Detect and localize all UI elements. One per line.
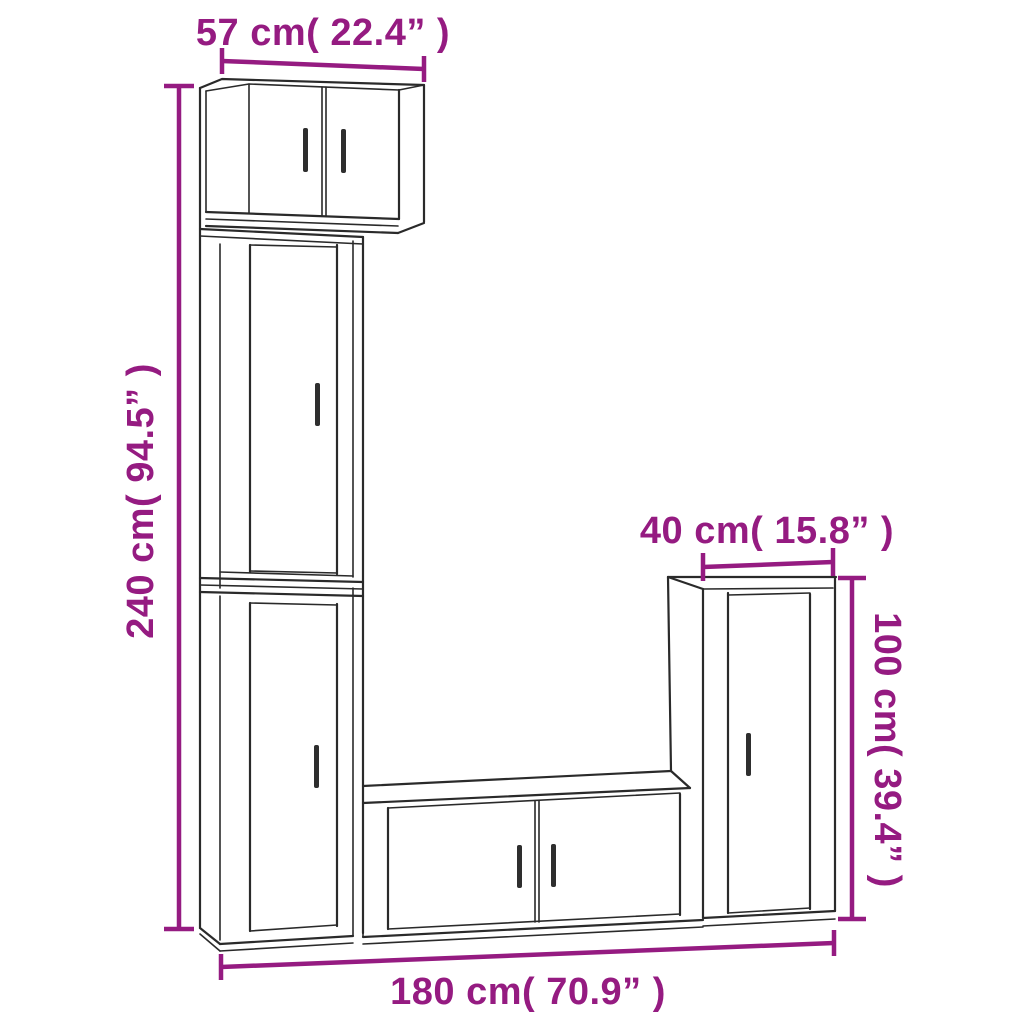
dimension-diagram: 57 cm( 22.4” ) 240 cm( 94.5” ) 40 cm( 15…: [0, 0, 1024, 1024]
side-cabinet-right-drawing: [668, 577, 836, 926]
door-handle: [517, 845, 522, 888]
stack-junction-lines: [200, 572, 363, 596]
door-handle: [315, 383, 320, 426]
label-right-cabinet-width: 40 cm( 15.8” ): [640, 510, 894, 552]
tv-bench-drawing: [363, 771, 703, 944]
door-handle: [551, 844, 556, 887]
dim-line-left-height: [164, 86, 194, 929]
label-left-height: 240 cm( 94.5” ): [120, 363, 162, 639]
door-handle: [341, 129, 346, 173]
label-bottom-width: 180 cm( 70.9” ): [390, 971, 666, 1013]
wall-cabinet-top-drawing: [200, 79, 424, 233]
dim-line-right-cabinet-height: [838, 578, 866, 919]
left-column-outline: [200, 88, 206, 928]
tall-cabinet-lower-drawing: [200, 588, 353, 951]
door-handle: [314, 745, 319, 788]
furniture-line-drawing: 57 cm( 22.4” ) 240 cm( 94.5” ) 40 cm( 15…: [0, 0, 1024, 1024]
label-right-cabinet-height: 100 cm( 39.4” ): [866, 612, 908, 888]
door-handle: [746, 733, 751, 776]
door-handle: [303, 128, 308, 172]
dimension-labels: 57 cm( 22.4” ) 240 cm( 94.5” ) 40 cm( 15…: [120, 12, 908, 1013]
label-top-width: 57 cm( 22.4” ): [196, 12, 450, 54]
